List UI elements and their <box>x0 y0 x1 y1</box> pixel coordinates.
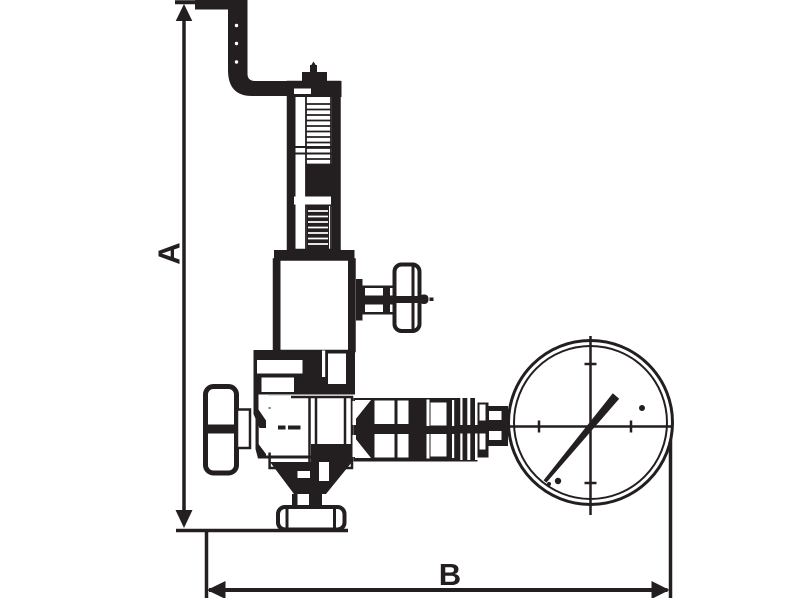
svg-text:A: A <box>152 242 187 264</box>
svg-text:B: B <box>439 557 461 592</box>
